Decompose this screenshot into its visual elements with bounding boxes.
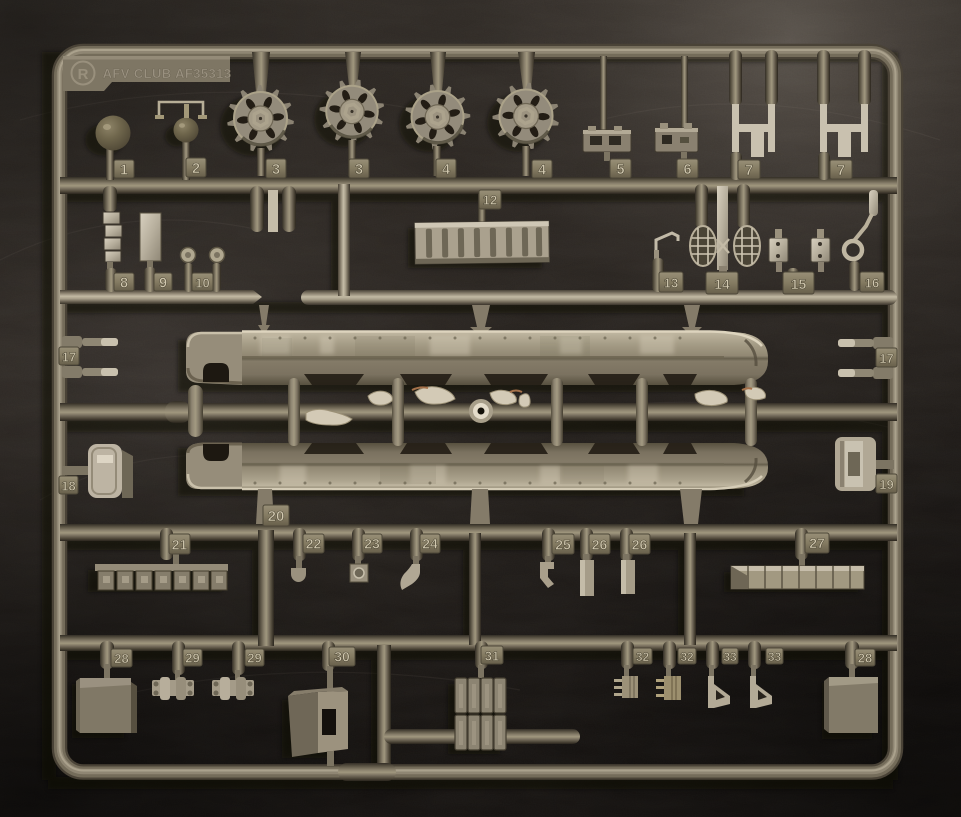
svg-text:20: 20: [268, 508, 285, 525]
svg-text:4: 4: [442, 162, 450, 178]
svg-text:27: 27: [809, 535, 825, 551]
svg-text:17: 17: [62, 350, 76, 365]
svg-text:32: 32: [636, 650, 650, 664]
svg-text:33: 33: [768, 650, 782, 664]
svg-text:7: 7: [837, 163, 845, 179]
svg-text:3: 3: [355, 162, 363, 178]
svg-text:1: 1: [120, 163, 128, 179]
svg-text:7: 7: [745, 163, 753, 179]
svg-text:25: 25: [555, 537, 571, 553]
svg-text:4: 4: [538, 163, 546, 179]
svg-text:16: 16: [865, 276, 879, 291]
svg-text:12: 12: [483, 193, 497, 208]
svg-text:3: 3: [272, 162, 280, 178]
svg-text:2: 2: [192, 161, 200, 177]
svg-text:32: 32: [680, 650, 694, 664]
svg-text:5: 5: [616, 162, 624, 178]
svg-text:21: 21: [172, 537, 188, 553]
svg-text:14: 14: [714, 276, 730, 292]
svg-text:24: 24: [422, 536, 438, 552]
svg-text:8: 8: [120, 276, 128, 292]
svg-text:18: 18: [61, 479, 75, 494]
svg-text:17: 17: [879, 351, 893, 366]
svg-text:19: 19: [879, 477, 893, 492]
svg-text:29: 29: [247, 651, 261, 666]
svg-text:26: 26: [632, 537, 648, 553]
svg-text:6: 6: [683, 162, 691, 178]
svg-text:R: R: [78, 66, 89, 83]
svg-text:26: 26: [592, 537, 608, 553]
svg-text:28: 28: [858, 651, 872, 666]
svg-text:33: 33: [723, 650, 737, 664]
svg-text:15: 15: [791, 276, 807, 292]
svg-text:23: 23: [364, 536, 380, 552]
svg-text:30: 30: [334, 649, 350, 665]
svg-text:10: 10: [195, 276, 209, 291]
svg-text:29: 29: [185, 651, 199, 666]
svg-text:9: 9: [159, 276, 167, 292]
svg-text:AFV CLUB AF35313: AFV CLUB AF35313: [103, 66, 232, 81]
svg-text:31: 31: [485, 649, 499, 664]
svg-text:22: 22: [306, 536, 322, 552]
svg-text:13: 13: [664, 276, 678, 291]
svg-text:28: 28: [114, 651, 128, 666]
